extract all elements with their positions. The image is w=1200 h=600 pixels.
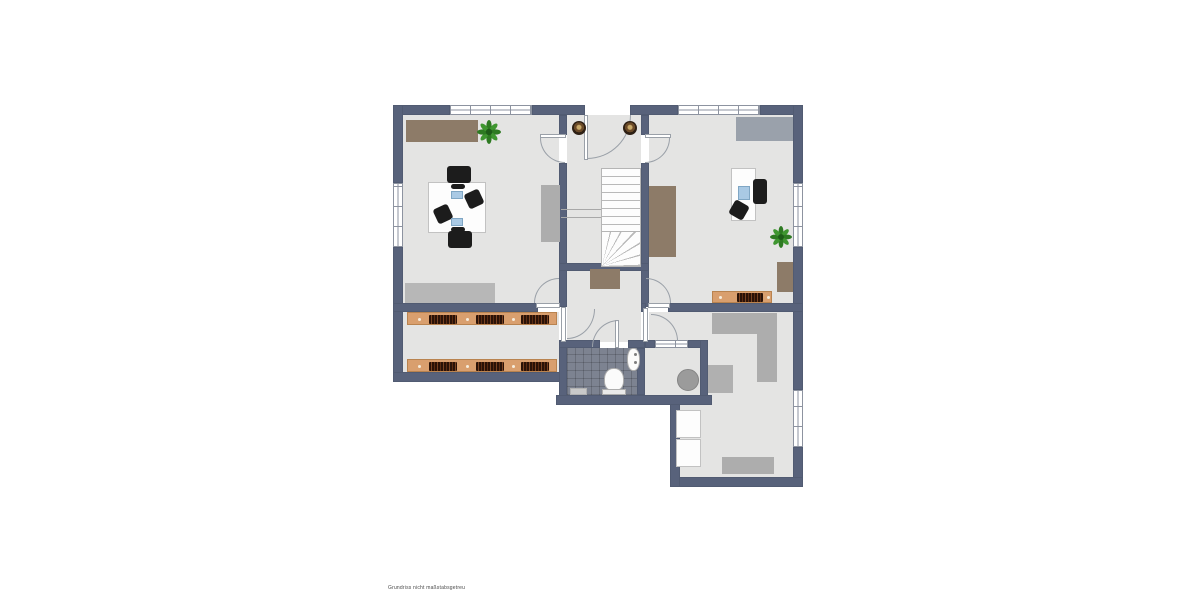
wall-left-lower — [393, 247, 403, 382]
plant-icon — [477, 120, 501, 144]
shelf-dot — [512, 365, 515, 368]
wall-hall-left-b — [559, 163, 567, 307]
toilet — [604, 368, 624, 391]
wall-right-upper — [793, 105, 803, 183]
wall-right-mid — [793, 247, 803, 390]
books — [521, 315, 549, 324]
white-cabinet-2 — [676, 439, 701, 467]
books — [476, 315, 504, 324]
plant-left-office — [477, 120, 501, 144]
lowboard-bottom-right — [722, 457, 774, 474]
window-right-lower — [793, 390, 803, 447]
bookshelf-right-office — [712, 291, 772, 303]
wall-top-3 — [630, 105, 678, 115]
bath-mat — [570, 388, 587, 395]
window-left — [393, 183, 403, 247]
wall-left-upper — [393, 105, 403, 183]
wall-top-2 — [532, 105, 585, 115]
wall-storage-right — [700, 340, 708, 403]
laptop-right-office — [738, 186, 750, 200]
faucet-dot — [634, 353, 637, 356]
cabinet-left-office — [541, 185, 560, 242]
cabinet-bottom-right — [708, 365, 733, 393]
stair-break-line-2 — [561, 217, 601, 218]
shelf-dot — [512, 318, 515, 321]
meeting-chair-bottom — [448, 231, 472, 248]
shelf-dot — [466, 365, 469, 368]
floorplan-canvas: Grundriss nicht maßstabsgetreu — [0, 0, 1200, 600]
watermark-small-print: Grundriss nicht maßstabsgetreu — [388, 585, 465, 591]
books — [737, 293, 763, 302]
wall-library-bottom — [393, 372, 567, 382]
wall-office-right-bottom-b — [668, 303, 803, 312]
door-passage-leaf — [643, 308, 648, 342]
toilet-tank — [602, 389, 626, 395]
shelf-dot — [719, 296, 722, 299]
books — [521, 362, 549, 371]
laptop-bottom — [451, 218, 463, 226]
window-right-upper — [793, 183, 803, 247]
plant-icon — [770, 226, 792, 248]
sideboard-left-office — [406, 120, 478, 142]
staircase-straight-run — [601, 168, 641, 232]
window-top-left — [450, 105, 532, 115]
wall-hall-left-a — [559, 115, 567, 135]
window-top-right — [678, 105, 760, 115]
wall-hall-right-a — [641, 115, 649, 135]
staircase-winder — [601, 232, 641, 267]
entrance-lamp-right — [623, 121, 637, 135]
hall-doormat — [590, 269, 620, 289]
rug-left-office — [405, 283, 495, 303]
shelf-dot — [767, 296, 770, 299]
books — [429, 362, 457, 371]
wardrobe-vertical — [757, 334, 777, 382]
faucet-dot — [634, 361, 637, 364]
cabinet-right-wall — [777, 262, 793, 292]
shelf-dot — [418, 318, 421, 321]
desk-item-top — [451, 184, 465, 189]
stair-break-line-1 — [561, 209, 601, 210]
plant-right-office — [770, 226, 792, 248]
door-left-office-lower-leaf — [536, 303, 560, 308]
wardrobe-horizontal — [712, 313, 777, 334]
desk-item-bottom — [451, 227, 465, 232]
door-right-office-lower-leaf — [648, 303, 670, 308]
shelf-dot — [418, 365, 421, 368]
laundry-basket — [677, 369, 699, 391]
wall-bottomright-bottom — [672, 477, 803, 487]
sideboard-right-office-top — [736, 117, 793, 141]
shelf-dot — [466, 318, 469, 321]
laptop-top — [451, 191, 463, 199]
library-shelf-top — [407, 312, 557, 325]
window-storage-room — [655, 340, 688, 348]
white-cabinet-1 — [676, 410, 701, 438]
monitor-right-office — [753, 179, 767, 204]
library-shelf-bottom — [407, 359, 557, 372]
books — [429, 315, 457, 324]
door-library-leaf — [561, 307, 566, 342]
bathroom-sink — [627, 348, 640, 371]
sideboard-stairwell-right — [649, 186, 676, 257]
entrance-lamp-left — [572, 121, 586, 135]
wall-bath-bottom — [556, 395, 712, 405]
meeting-chair-top — [447, 166, 471, 183]
wall-office-left-bottom — [393, 303, 538, 312]
books — [476, 362, 504, 371]
